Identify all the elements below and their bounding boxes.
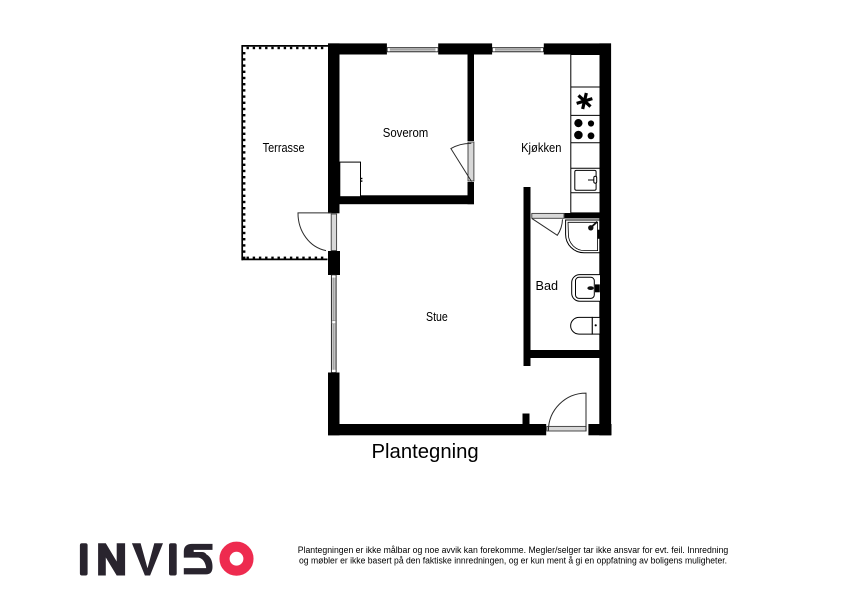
svg-text:Bad: Bad	[536, 278, 559, 293]
svg-text:Plantegning: Plantegning	[372, 440, 479, 463]
svg-text:Kjøkken: Kjøkken	[521, 140, 561, 155]
svg-text:Stue: Stue	[426, 309, 448, 324]
svg-text:Plantegningen er ikke målbar o: Plantegningen er ikke målbar og noe avvi…	[298, 545, 729, 555]
svg-text:Soverom: Soverom	[383, 125, 429, 140]
svg-text:Terrasse: Terrasse	[263, 140, 305, 155]
svg-text:og møbler er ikke basert på de: og møbler er ikke basert på den faktiske…	[299, 556, 727, 566]
